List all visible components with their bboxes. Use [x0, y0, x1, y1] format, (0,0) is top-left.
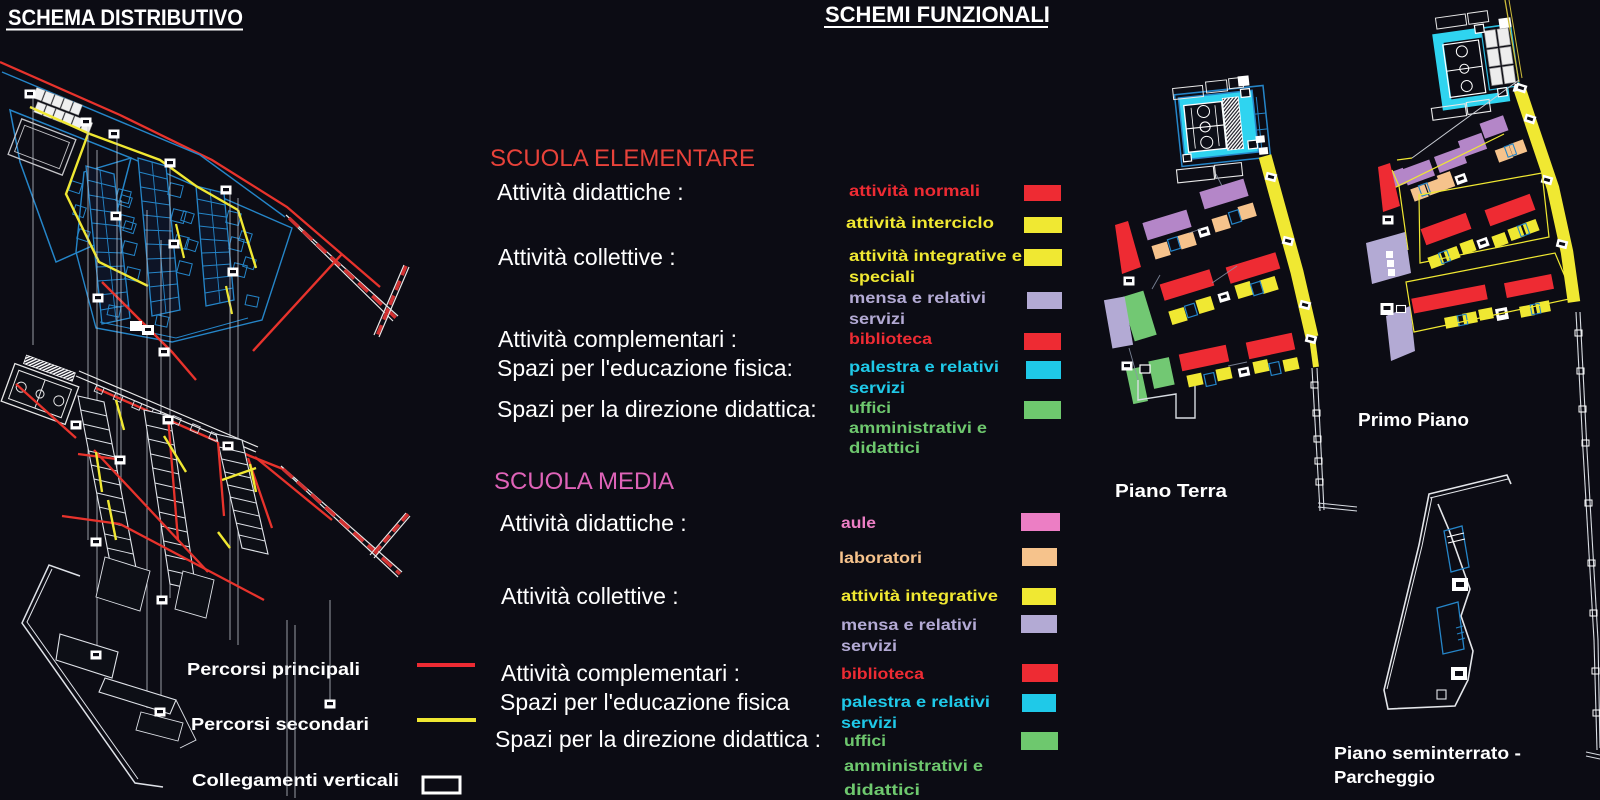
svg-text:servizi: servizi — [841, 638, 897, 655]
svg-text:didattici: didattici — [844, 782, 920, 799]
svg-text:Attività complementari :: Attività complementari : — [498, 326, 737, 352]
svg-text:didattici: didattici — [849, 440, 920, 457]
svg-text:Attività complementari :: Attività complementari : — [501, 660, 740, 686]
svg-text:Spazi per l'educazione fisica:: Spazi per l'educazione fisica: — [497, 355, 793, 381]
svg-text:SCHEMI FUNZIONALI: SCHEMI FUNZIONALI — [825, 2, 1050, 27]
svg-text:Spazi per la direzione didatti: Spazi per la direzione didattica: — [497, 396, 817, 422]
svg-text:attività normali: attività normali — [849, 183, 980, 200]
svg-text:Attività didattiche :: Attività didattiche : — [497, 179, 684, 205]
svg-text:biblioteca: biblioteca — [849, 331, 932, 348]
svg-text:speciali: speciali — [849, 269, 915, 286]
svg-text:servizi: servizi — [849, 380, 905, 397]
svg-text:uffici: uffici — [849, 400, 891, 417]
svg-text:Piano Terra: Piano Terra — [1115, 481, 1228, 501]
svg-text:SCUOLA ELEMENTARE: SCUOLA ELEMENTARE — [490, 145, 755, 172]
svg-text:biblioteca: biblioteca — [841, 666, 924, 683]
svg-text:Percorsi secondari: Percorsi secondari — [191, 714, 369, 734]
svg-text:SCUOLA MEDIA: SCUOLA MEDIA — [494, 468, 674, 495]
svg-text:Spazi per l'educazione fisica: Spazi per l'educazione fisica — [500, 689, 790, 715]
svg-text:amministrativi e: amministrativi e — [844, 758, 983, 775]
svg-text:servizi: servizi — [841, 715, 897, 732]
svg-text:servizi: servizi — [849, 311, 905, 328]
svg-text:attività integrative: attività integrative — [841, 588, 998, 605]
svg-text:Percorsi principali: Percorsi principali — [187, 659, 360, 679]
svg-text:palestra e relativi: palestra e relativi — [849, 359, 999, 376]
svg-text:uffici: uffici — [844, 733, 886, 750]
svg-text:Parcheggio: Parcheggio — [1334, 767, 1435, 787]
svg-text:aule: aule — [841, 515, 876, 532]
svg-text:palestra e relativi: palestra e relativi — [841, 694, 990, 711]
svg-text:attività interciclo: attività interciclo — [846, 215, 994, 232]
svg-text:SCHEMA DISTRIBUTIVO: SCHEMA DISTRIBUTIVO — [8, 5, 243, 30]
svg-text:Piano seminterrato -: Piano seminterrato - — [1334, 743, 1521, 763]
svg-text:Spazi per la direzione didatti: Spazi per la direzione didattica : — [495, 726, 821, 752]
svg-text:attività integrative e: attività integrative e — [849, 248, 1022, 265]
svg-text:amministrativi e: amministrativi e — [849, 420, 987, 437]
svg-text:mensa e relativi: mensa e relativi — [849, 290, 986, 307]
svg-text:Primo Piano: Primo Piano — [1358, 410, 1469, 430]
svg-text:mensa e relativi: mensa e relativi — [841, 617, 977, 634]
svg-text:Attività collettive :: Attività collettive : — [498, 244, 676, 270]
svg-text:Collegamenti verticali: Collegamenti verticali — [192, 770, 399, 790]
svg-text:Attività collettive :: Attività collettive : — [501, 583, 679, 609]
svg-text:Attività didattiche :: Attività didattiche : — [500, 510, 687, 536]
svg-text:laboratori: laboratori — [839, 550, 922, 567]
